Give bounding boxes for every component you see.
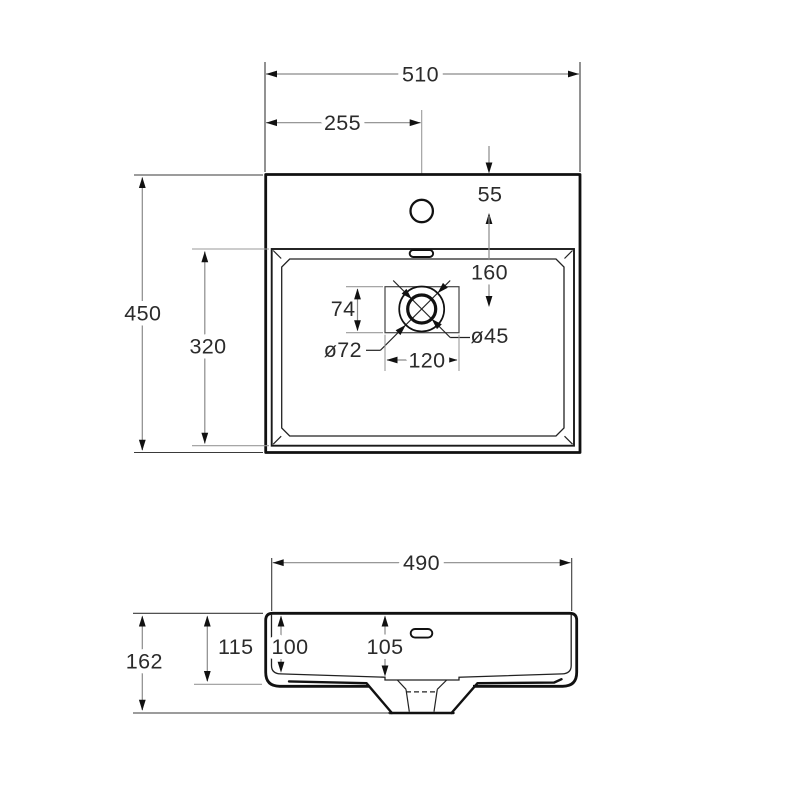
dim-overall-width: 510 [265,62,580,172]
dim-label-drain-outer: ø72 [324,338,362,362]
dim-faucet-center-offset: 255 [266,111,421,135]
dim-label-100: 100 [271,635,308,659]
dim-body-height: 115 [194,616,262,685]
dim-basin-inner-depth: 320 [189,249,269,446]
front-view: 490 162 115 100 [126,551,577,713]
plan-view: ø72 ø45 510 255 55 16 [124,62,580,453]
dim-label-160: 160 [471,261,508,285]
dim-label-drain-inner: ø45 [471,324,509,348]
dim-label-120: 120 [408,349,445,373]
dim-front-top-width: 490 [272,551,572,611]
dim-overall-depth: 450 [124,175,263,453]
overflow-slot-front [411,629,433,638]
overflow-slot-plan [410,250,433,257]
dim-total-height: 162 [126,613,263,711]
dim-label-55: 55 [478,183,503,207]
dim-label-255: 255 [324,111,361,135]
technical-drawing: ø72 ø45 510 255 55 16 [0,0,800,800]
dim-label-162: 162 [126,650,163,674]
dim-label-115: 115 [218,635,253,659]
basin-rim-edge [272,249,574,446]
faucet-hole [411,200,433,222]
dim-label-105: 105 [366,635,403,659]
drawing-canvas: ø72 ø45 510 255 55 16 [0,0,800,800]
dim-label-450: 450 [124,302,161,326]
dim-label-490: 490 [403,551,440,575]
dim-label-74: 74 [331,297,356,321]
dim-label-510: 510 [402,63,439,87]
dim-label-320: 320 [189,335,226,359]
